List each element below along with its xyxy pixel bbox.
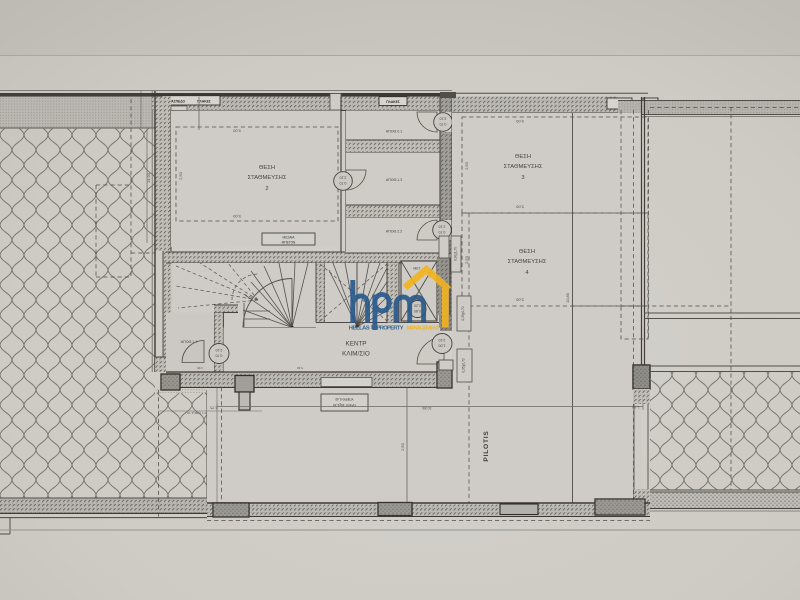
svg-text:2,50: 2,50	[464, 255, 469, 264]
svg-text:0,80: 0,80	[414, 309, 421, 313]
svg-text:5,00: 5,00	[515, 119, 524, 124]
svg-text:ΜΕΣΑΙΑ: ΜΕΣΑΙΑ	[283, 235, 296, 239]
svg-text:1,00: 1,00	[439, 343, 446, 347]
svg-text:ΘΕΣΗ: ΘΕΣΗ	[515, 154, 531, 160]
svg-text:2,50: 2,50	[178, 171, 183, 180]
svg-text:ΣΤΑΘΜΕΥΣΗΣ: ΣΤΑΘΜΕΥΣΗΣ	[508, 259, 547, 265]
svg-text:3,95: 3,95	[197, 366, 203, 370]
svg-text:0,35χ0,70: 0,35χ0,70	[461, 306, 465, 320]
svg-text:0,90χ1,70: 0,90χ1,70	[454, 247, 458, 261]
svg-text:5,00: 5,00	[232, 129, 241, 134]
svg-text:ΠΛΑΚΕΣ: ΠΛΑΚΕΣ	[386, 100, 400, 104]
svg-text:PROPERTY: PROPERTY	[377, 326, 404, 332]
svg-text:2,10: 2,10	[340, 175, 347, 179]
svg-text:ΘΕΣΗ: ΘΕΣΗ	[519, 249, 535, 255]
svg-text:ΘΕΣΗ: ΘΕΣΗ	[259, 165, 275, 171]
svg-text:ΑΠΟΘ.1.3: ΑΠΟΘ.1.3	[386, 178, 403, 182]
svg-text:MANAGEMENT: MANAGEMENT	[407, 326, 440, 332]
svg-text:0,70: 0,70	[216, 353, 223, 357]
svg-text:0,75: 0,75	[210, 406, 217, 410]
svg-text:2,10: 2,10	[216, 348, 223, 352]
svg-text:5,20: 5,20	[297, 366, 303, 370]
svg-text:ΥΠΕΡΘ 0,40: ΥΠΕΡΘ 0,40	[335, 397, 353, 401]
svg-text:14,90: 14,90	[146, 172, 151, 183]
svg-text:ΚΛΙΜ/ΣΙΟ: ΚΛΙΜ/ΣΙΟ	[342, 351, 370, 358]
svg-text:5,00: 5,00	[515, 205, 524, 210]
svg-text:10,86: 10,86	[422, 406, 432, 410]
svg-text:ΑΠΟΘ.2.2: ΑΠΟΘ.2.2	[386, 230, 403, 234]
svg-text:ΚΕΝΤΡ: ΚΕΝΤΡ	[346, 341, 367, 348]
svg-text:3: 3	[521, 175, 524, 181]
svg-text:Π.Υ 0,35χ1,70: Π.Υ 0,35χ1,70	[187, 411, 207, 415]
svg-text:HELLAS: HELLAS	[349, 326, 370, 332]
svg-text:0,70: 0,70	[439, 230, 446, 234]
svg-text:2,10: 2,10	[439, 224, 446, 228]
svg-text:2,50: 2,50	[400, 442, 405, 451]
svg-text:0,35χ0,70: 0,35χ0,70	[462, 358, 466, 372]
svg-text:10,85: 10,85	[565, 292, 570, 303]
svg-text:2,50: 2,50	[464, 161, 469, 170]
svg-text:PILOTIS: PILOTIS	[483, 430, 490, 461]
svg-text:ΑΠΟΘ.0.1: ΑΠΟΘ.0.1	[386, 130, 403, 134]
svg-text:ΣΤΑΘΜΕΥΣΗΣ: ΣΤΑΘΜΕΥΣΗΣ	[504, 164, 543, 170]
svg-text:5,00: 5,00	[232, 214, 241, 219]
svg-text:ΜΕΤ: ΜΕΤ	[413, 267, 420, 271]
svg-text:0,70: 0,70	[440, 122, 447, 126]
svg-text:0,70: 0,70	[340, 181, 347, 185]
svg-text:1,40: 1,40	[632, 405, 639, 409]
svg-text:2,10: 2,10	[440, 116, 447, 120]
svg-text:2: 2	[265, 186, 268, 192]
svg-text:ΜΠΕΤΟΝ: ΜΠΕΤΟΝ	[282, 240, 296, 244]
svg-text:2,10: 2,10	[439, 338, 446, 342]
svg-text:ΣΤΑΘΜΕΥΣΗΣ: ΣΤΑΘΜΕΥΣΗΣ	[248, 175, 287, 181]
svg-text:2,20: 2,20	[414, 303, 421, 307]
svg-text:5,00: 5,00	[515, 298, 524, 303]
